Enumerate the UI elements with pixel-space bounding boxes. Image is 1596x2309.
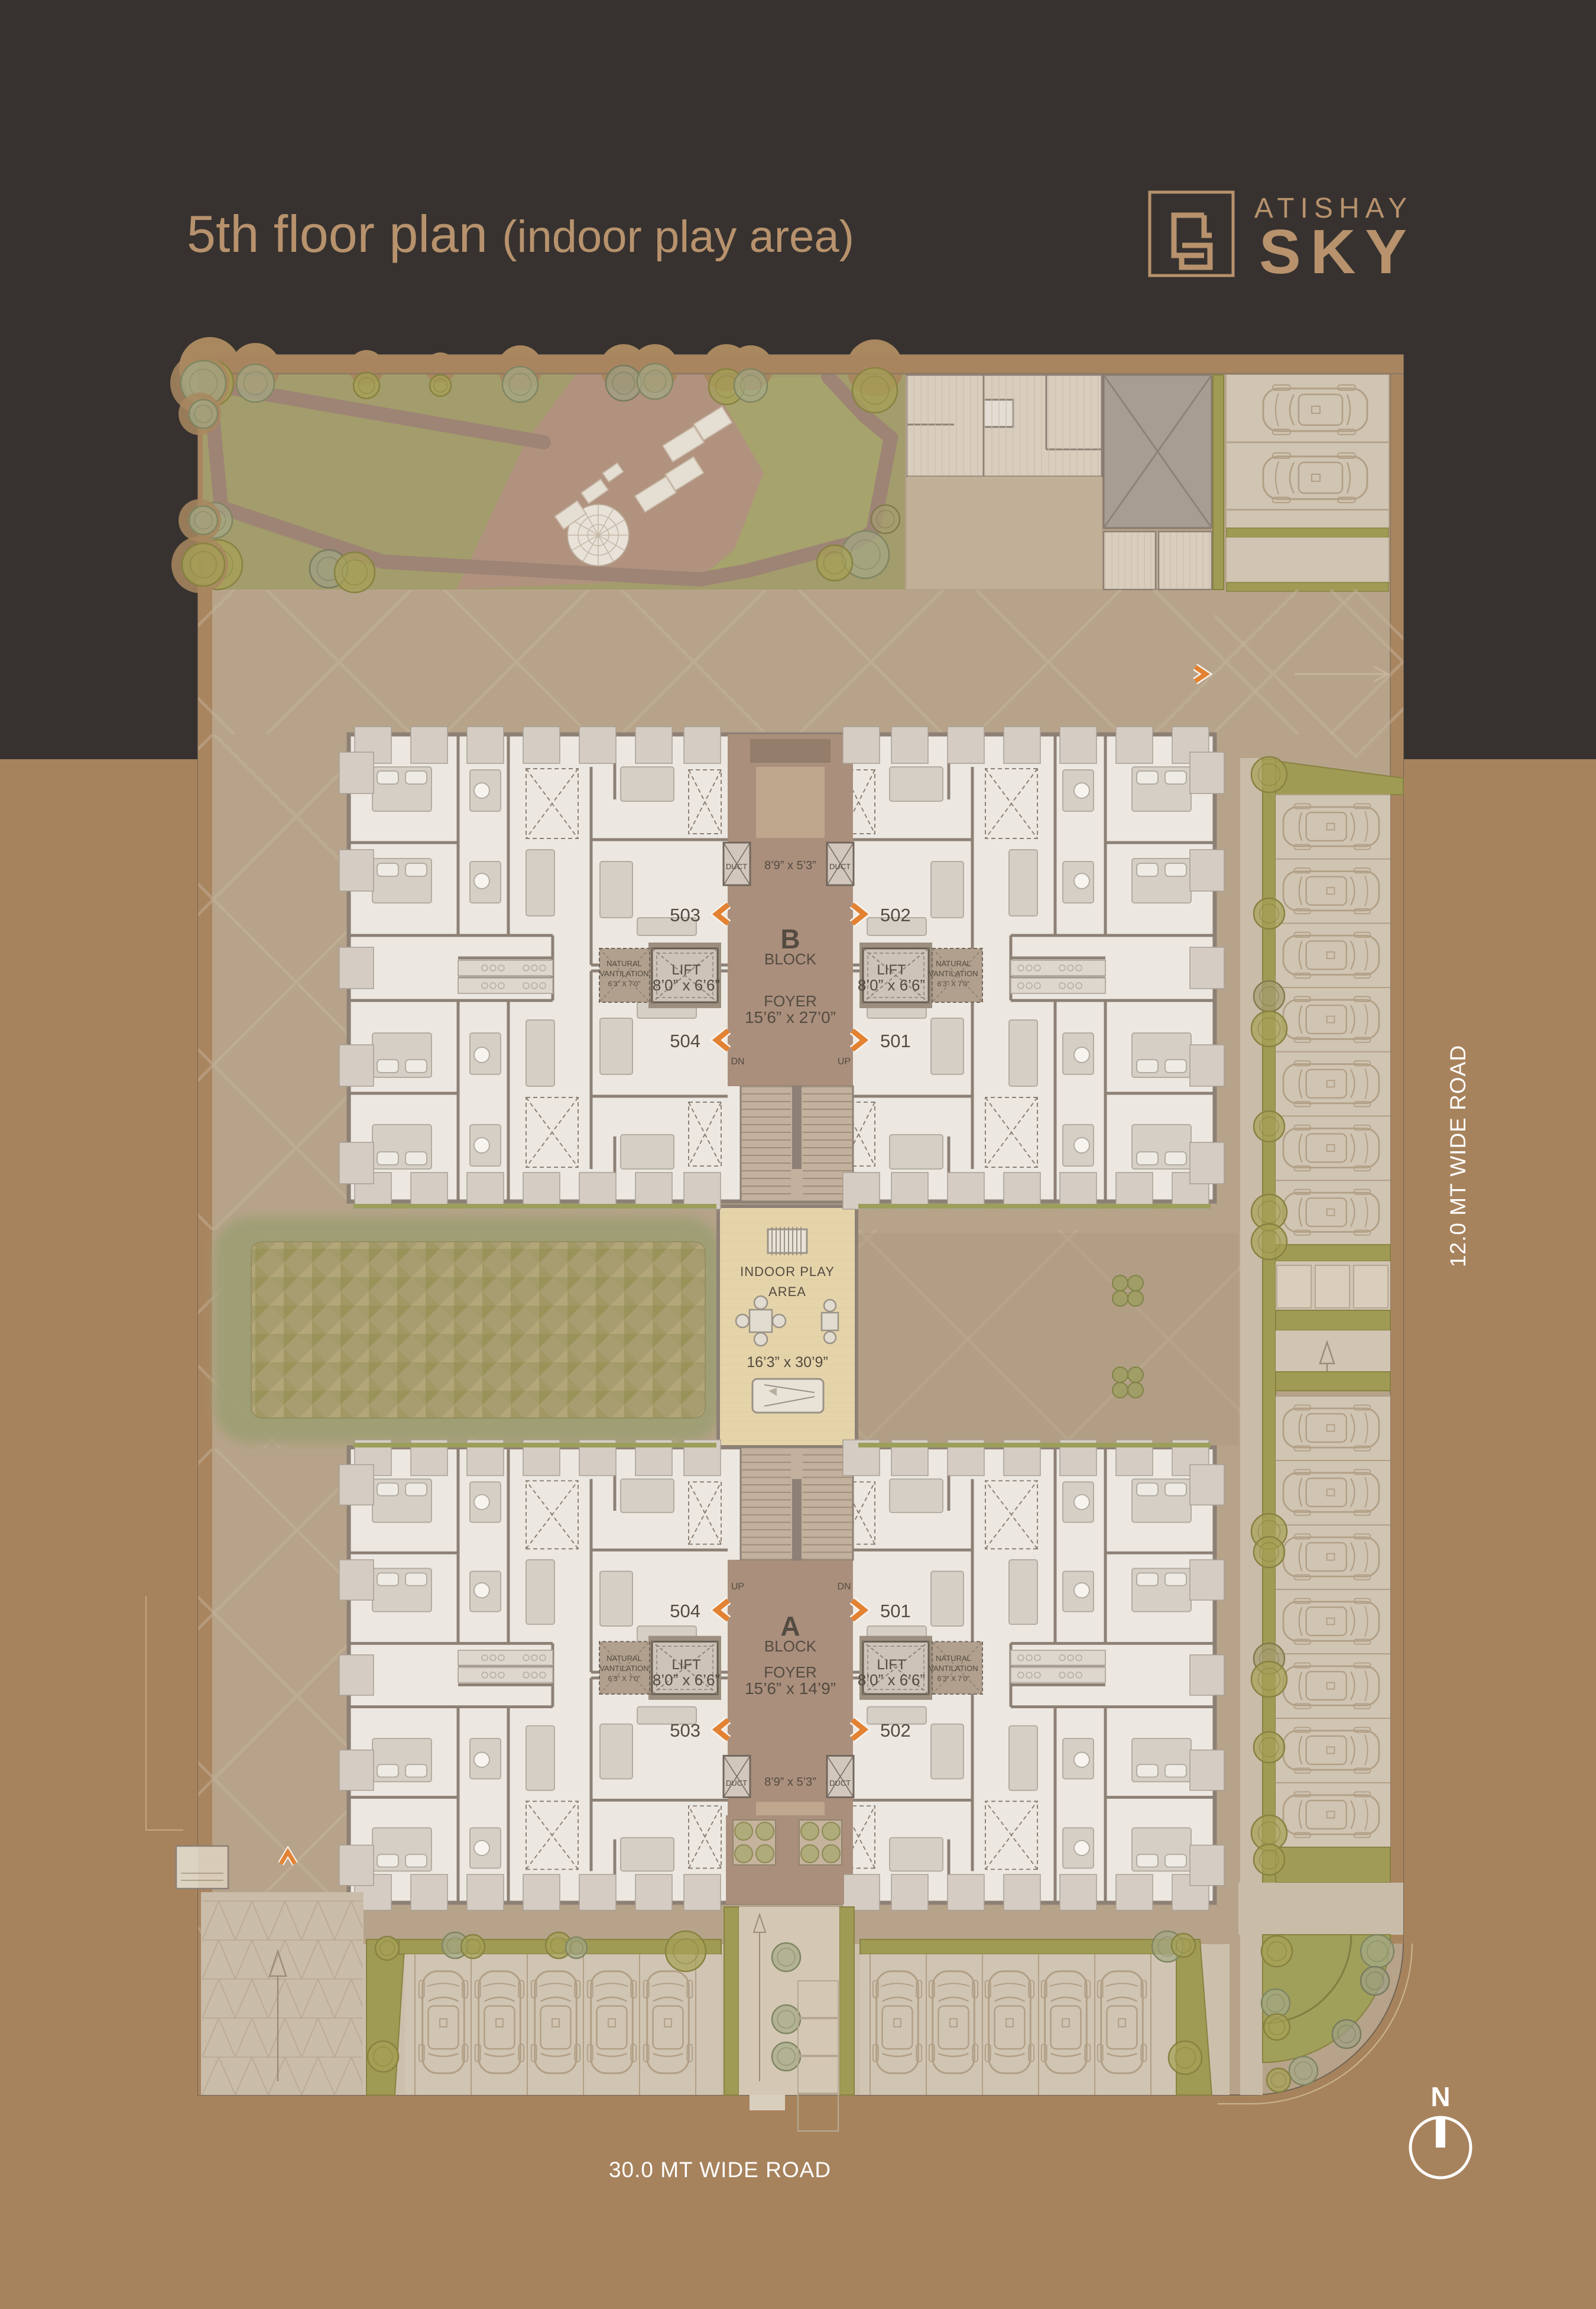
svg-text:SKY: SKY [1259,217,1416,287]
svg-text:12.0 MT WIDE ROAD: 12.0 MT WIDE ROAD [1446,1045,1470,1267]
svg-text:N: N [1430,2081,1450,2112]
svg-text:5th floor plan (indoor play ar: 5th floor plan (indoor play area) [187,205,854,263]
svg-text:30.0 MT WIDE ROAD: 30.0 MT WIDE ROAD [609,2158,831,2182]
